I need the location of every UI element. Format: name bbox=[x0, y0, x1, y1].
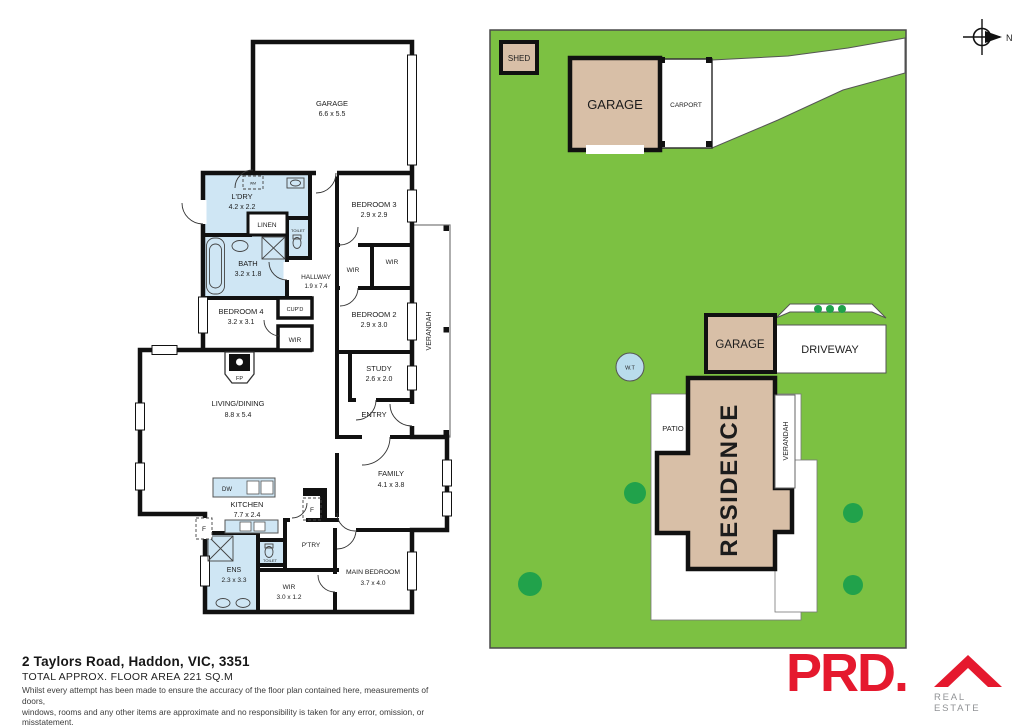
water-tank-label: W.T bbox=[625, 366, 635, 372]
room-label: F bbox=[202, 526, 206, 533]
room-dims: 6.6 x 5.5 bbox=[319, 111, 346, 118]
room-dims: 3.2 x 3.1 bbox=[228, 319, 255, 326]
room-dims: 2.9 x 3.0 bbox=[361, 322, 388, 329]
room-label: WM bbox=[250, 182, 256, 186]
room-label: WIR bbox=[289, 337, 302, 344]
carport-label: CARPORT bbox=[670, 102, 702, 109]
shed-label: SHED bbox=[508, 54, 530, 63]
room-dims: 3.0 x 1.2 bbox=[277, 594, 302, 601]
room-dims: 3.2 x 1.8 bbox=[235, 271, 262, 278]
room-label: LINEN bbox=[257, 222, 276, 229]
garage-door-opening bbox=[586, 145, 644, 154]
room-label: L'DRY bbox=[231, 192, 252, 201]
floor-plan-drawing: GARAGE 6.6 x 5.5 L'DRY 4.2 x 2.2 LINEN T… bbox=[0, 0, 490, 660]
disclaimer-line: windows, rooms and any other items are a… bbox=[22, 707, 452, 725]
room-label: FP bbox=[236, 376, 243, 382]
tree bbox=[843, 575, 863, 595]
site-plan-drawing: SHED CARPORT GARAGE DRIVEWAY GARAGE RESI… bbox=[488, 28, 908, 650]
compass-north-label: N bbox=[1006, 33, 1013, 43]
room-label: WIR bbox=[386, 259, 399, 266]
verandah-post bbox=[444, 226, 450, 232]
room-label: BATH bbox=[238, 259, 257, 268]
room-label: DW bbox=[222, 487, 232, 493]
driveway-label: DRIVEWAY bbox=[801, 344, 859, 356]
sink-icon bbox=[261, 481, 273, 494]
tree bbox=[843, 503, 863, 523]
north-arrow-icon bbox=[985, 31, 1002, 43]
room-label: ENS bbox=[227, 567, 242, 574]
bench bbox=[225, 520, 278, 533]
room-label: CUP'D bbox=[287, 307, 304, 313]
verandah-post bbox=[444, 327, 450, 333]
room-label: TOILET bbox=[263, 558, 277, 563]
windows bbox=[136, 55, 452, 590]
room-label: BEDROOM 4 bbox=[218, 307, 263, 316]
wall-stub bbox=[303, 488, 327, 496]
room-label: FAMILY bbox=[378, 469, 404, 478]
room-dims: 2.6 x 2.0 bbox=[366, 376, 393, 383]
room-label: LIVING/DINING bbox=[212, 399, 265, 408]
room-label: GARAGE bbox=[316, 99, 348, 108]
room-label: WIR bbox=[283, 584, 296, 591]
room-label: BEDROOM 2 bbox=[351, 310, 396, 319]
room-dims: 4.2 x 2.2 bbox=[229, 204, 256, 211]
disclaimer-line: Whilst every attempt has been made to en… bbox=[22, 685, 452, 707]
room-dims: 2.9 x 2.9 bbox=[361, 212, 388, 219]
room-dims: 4.1 x 3.8 bbox=[378, 482, 405, 489]
roof-icon bbox=[930, 649, 1010, 693]
room-label: KITCHEN bbox=[231, 500, 264, 509]
property-address: 2 Taylors Road, Haddon, VIC, 3351 bbox=[22, 654, 250, 669]
room-label: MAIN BEDROOM bbox=[346, 569, 400, 576]
room-label: TOILET bbox=[291, 228, 305, 233]
carport-post bbox=[706, 57, 712, 63]
verandah-post bbox=[444, 430, 450, 436]
floor-area-text: TOTAL APPROX. FLOOR AREA 221 SQ.M bbox=[22, 671, 233, 683]
room-label: STUDY bbox=[366, 364, 391, 373]
patio-label: PATIO bbox=[662, 424, 684, 433]
room-label: ENTRY bbox=[361, 410, 386, 419]
compass: N bbox=[955, 12, 1021, 70]
room-dims: 3.7 x 4.0 bbox=[361, 580, 386, 587]
garage-label: GARAGE bbox=[715, 339, 765, 351]
room-dims: 1.9 x 7.4 bbox=[304, 284, 328, 290]
room-label: VERANDAH bbox=[426, 312, 433, 351]
room-label: P'TRY bbox=[302, 542, 321, 549]
disclaimer: Whilst every attempt has been made to en… bbox=[22, 685, 452, 725]
prd-brand-text: PRD. bbox=[786, 642, 907, 704]
room-label: WIR bbox=[347, 267, 360, 274]
residence-label: RESIDENCE bbox=[716, 403, 743, 557]
verandah-label: VERANDAH bbox=[783, 422, 790, 461]
room-dims: 7.7 x 2.4 bbox=[234, 512, 261, 519]
room-dims: 8.8 x 5.4 bbox=[225, 412, 252, 419]
sink-icon bbox=[247, 481, 259, 494]
room-label: F bbox=[310, 507, 314, 514]
carport-post bbox=[706, 141, 712, 147]
prd-logo: PRD. REAL ESTATE bbox=[786, 650, 1016, 720]
window bbox=[408, 55, 417, 165]
room-label: BEDROOM 3 bbox=[351, 200, 396, 209]
floorplan-sheet: GARAGE 6.6 x 5.5 L'DRY 4.2 x 2.2 LINEN T… bbox=[0, 0, 1024, 725]
room-dims: 2.3 x 3.3 bbox=[222, 577, 247, 584]
plant-dot bbox=[814, 305, 822, 313]
room-label: HALLWAY bbox=[301, 274, 332, 281]
tree bbox=[518, 572, 542, 596]
tree bbox=[624, 482, 646, 504]
plant-dot bbox=[826, 305, 834, 313]
plant-dot bbox=[838, 305, 846, 313]
prd-tagline: REAL ESTATE bbox=[934, 692, 1016, 714]
garage-label: GARAGE bbox=[587, 97, 643, 112]
